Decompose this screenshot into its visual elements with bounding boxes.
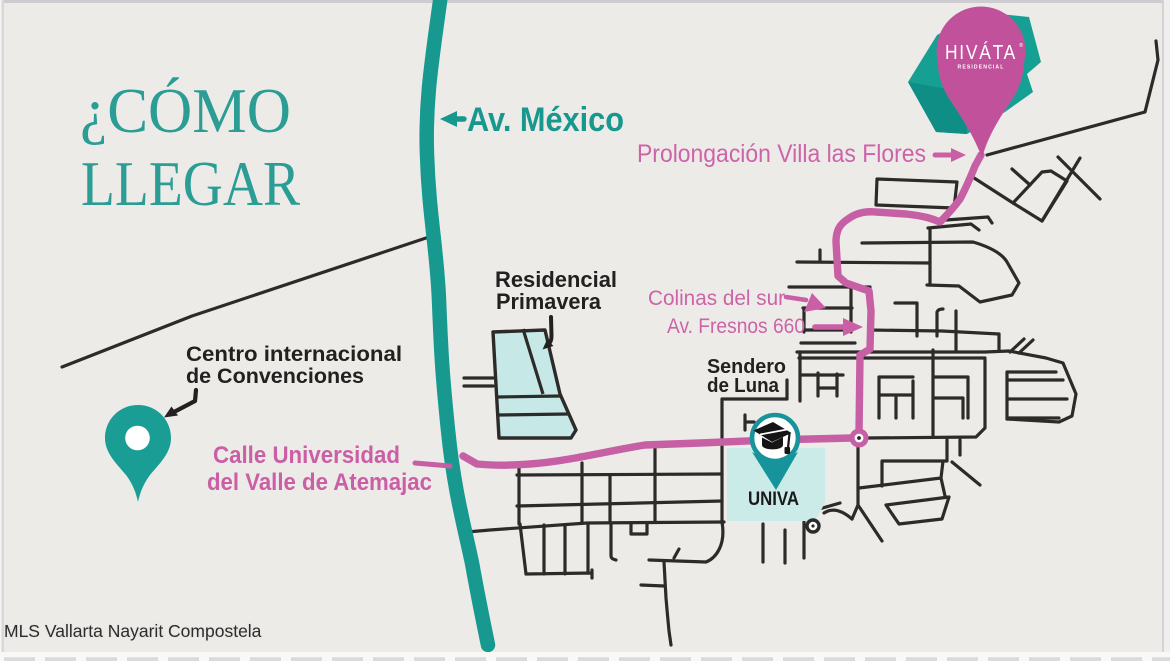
svg-text:MLS Vallarta Nayarit Compostel: MLS Vallarta Nayarit Compostela [4,621,262,641]
svg-text:de Luna: de Luna [707,375,780,397]
svg-text:UNIVA: UNIVA [748,489,799,510]
svg-text:del Valle de Atemajac: del Valle de Atemajac [207,469,432,496]
svg-text:LLEGAR: LLEGAR [81,149,300,219]
svg-text:Colinas del sur: Colinas del sur [648,287,785,310]
svg-text:Av. Fresnos 660: Av. Fresnos 660 [667,315,805,338]
svg-text:Av. México: Av. México [467,101,624,139]
svg-text:Prolongación Villa las Flores: Prolongación Villa las Flores [637,140,926,168]
svg-text:Centro internacional: Centro internacional [186,343,402,366]
svg-text:HIVÁTA: HIVÁTA [945,41,1017,64]
svg-text:¿CÓMO: ¿CÓMO [80,76,291,146]
svg-text:RESIDENCIAL: RESIDENCIAL [958,65,1005,71]
svg-text:®: ® [1019,42,1023,49]
svg-text:de Convenciones: de Convenciones [186,365,364,388]
svg-text:Primavera: Primavera [496,289,602,314]
svg-text:Calle Universidad: Calle Universidad [213,442,400,469]
